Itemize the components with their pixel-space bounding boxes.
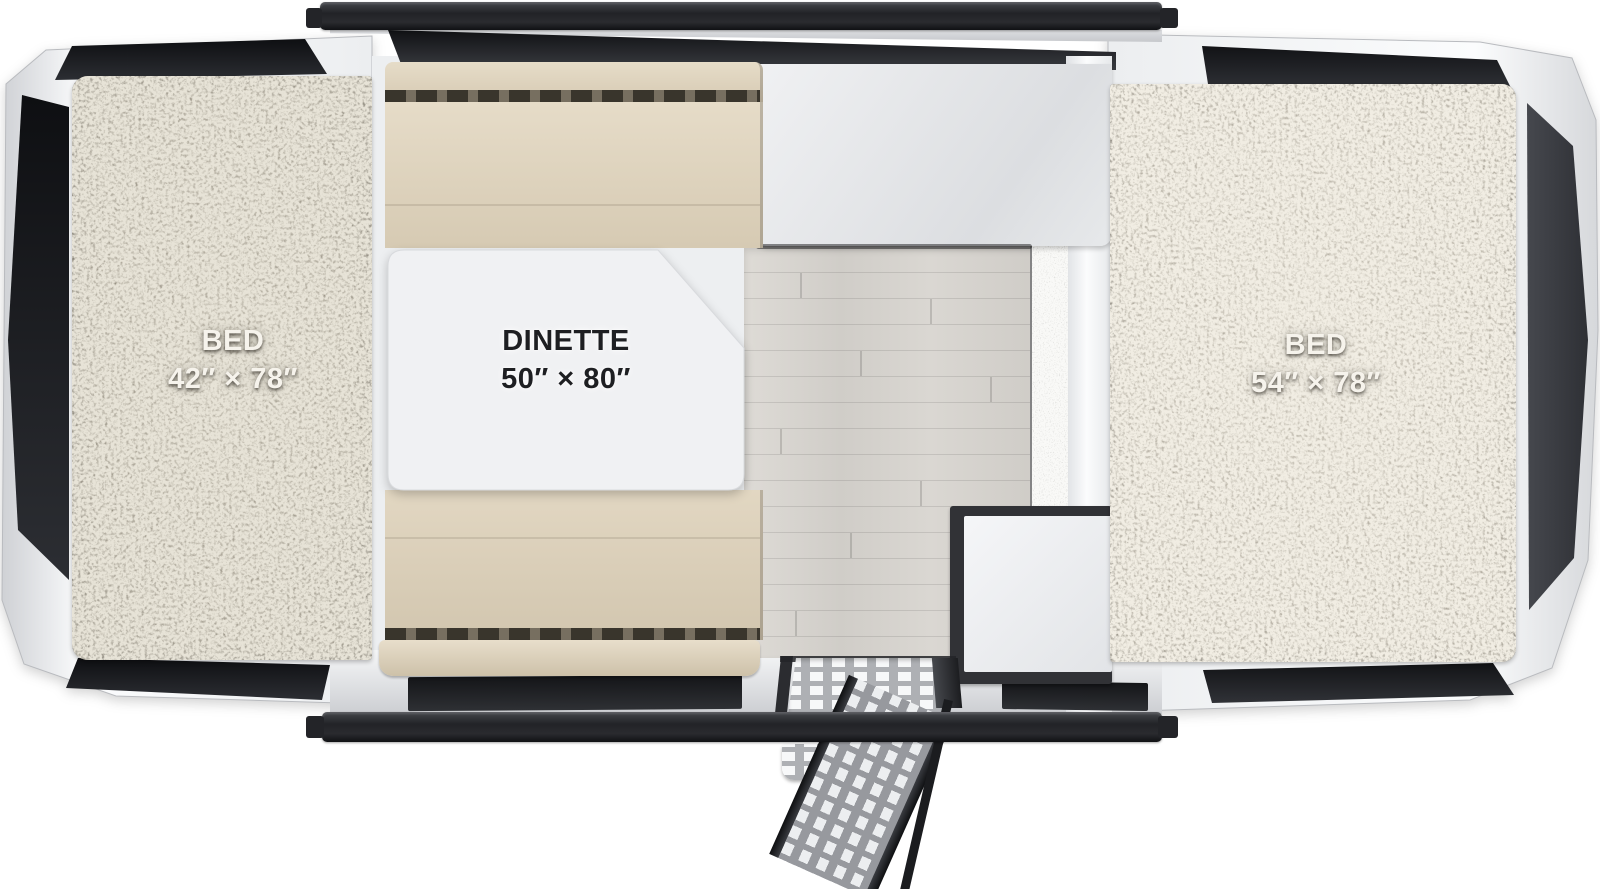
dinette-size: 50″ × 80″ <box>436 360 696 398</box>
floor-plank-joint <box>920 481 922 506</box>
bottom-rail-tab-left <box>306 716 324 738</box>
rear-window-left <box>408 675 742 711</box>
dinette-seat-front <box>379 640 760 676</box>
left-tent-window-top <box>55 39 327 80</box>
floorplan-canvas: BED 42″ × 78″ DINETTE 50″ × 80″ BED 54″ … <box>0 0 1600 889</box>
dinette-title: DINETTE <box>436 322 696 360</box>
top-rail-tab-left <box>306 8 322 28</box>
dinette-seat-top <box>385 102 763 248</box>
left-bed-title: BED <box>103 322 363 360</box>
floor-plank-joint <box>850 533 852 558</box>
right-bed-title: BED <box>1184 326 1448 364</box>
bottom-frame-rail <box>322 712 1162 742</box>
kitchen-counter <box>756 64 1112 246</box>
dinette-seatback-top <box>385 62 763 102</box>
top-frame-rail <box>320 2 1162 30</box>
floor-plank-joint <box>990 377 992 402</box>
bottom-rail-tab-right <box>1158 716 1178 738</box>
top-rail-tab-right <box>1160 8 1178 28</box>
right-bed-size: 54″ × 78″ <box>1184 364 1448 402</box>
dinette-seat-bottom <box>385 490 763 640</box>
left-tent-window-bottom <box>66 658 330 700</box>
cushion-seam <box>385 537 760 539</box>
floor-plank-joint <box>795 611 797 636</box>
right-bed-label: BED 54″ × 78″ <box>1184 326 1448 403</box>
dinette-label: DINETTE 50″ × 80″ <box>436 322 696 399</box>
floor-plank-joint <box>800 273 802 298</box>
left-bed-label: BED 42″ × 78″ <box>103 322 363 399</box>
counter-shadow-line <box>756 244 1032 249</box>
floor-plank-joint <box>780 429 782 454</box>
left-bed-size: 42″ × 78″ <box>103 360 363 398</box>
rear-window-right <box>1002 681 1148 711</box>
floor-plank-joint <box>860 351 862 376</box>
cushion-seam <box>385 204 760 206</box>
floor-plank-joint <box>930 299 932 324</box>
storage-cabinet <box>964 516 1112 672</box>
dinette-tuft-band-top <box>385 90 760 102</box>
dinette-tuft-band-bottom <box>385 628 760 640</box>
